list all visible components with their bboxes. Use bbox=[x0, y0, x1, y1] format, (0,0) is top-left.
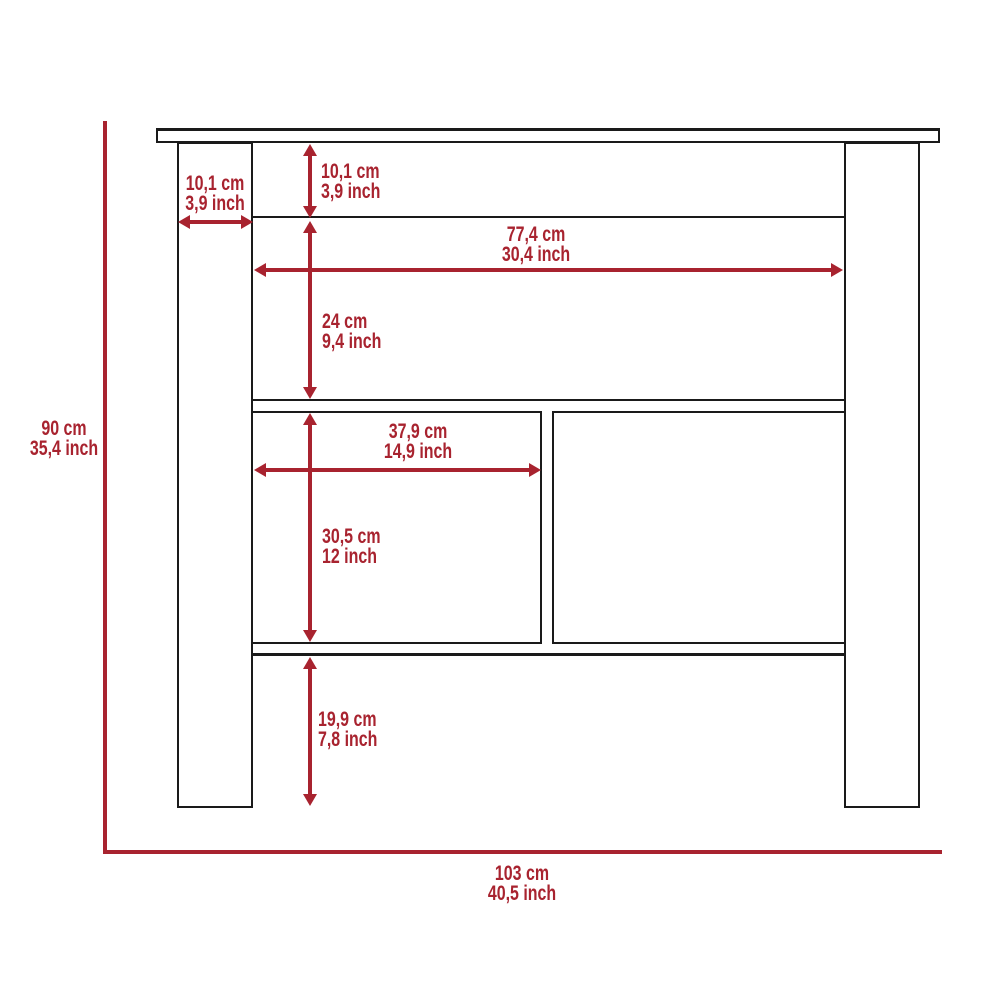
overall-width-inch: 40,5 inch bbox=[461, 884, 583, 904]
overall-width-label: 103 cm 40,5 inch bbox=[461, 864, 583, 904]
overall-width-line bbox=[103, 850, 942, 854]
upper-shelf-height-arrow bbox=[303, 221, 317, 399]
left-compartment-width-cm: 37,9 cm bbox=[357, 422, 479, 442]
upper-shelf-height-inch: 9,4 inch bbox=[322, 332, 381, 352]
upper-shelf-height-label: 24 cm 9,4 inch bbox=[322, 312, 381, 352]
leg-clearance-height-cm: 19,9 cm bbox=[318, 710, 377, 730]
overall-width-cm: 103 cm bbox=[461, 864, 583, 884]
right-leg bbox=[844, 142, 920, 808]
leg-width-label: 10,1 cm 3,9 inch bbox=[154, 174, 276, 214]
inner-width-label: 77,4 cm 30,4 inch bbox=[475, 225, 597, 265]
leg-width-inch: 3,9 inch bbox=[154, 194, 276, 214]
table-top bbox=[156, 128, 940, 143]
leg-width-cm: 10,1 cm bbox=[154, 174, 276, 194]
inner-width-cm: 77,4 cm bbox=[475, 225, 597, 245]
top-section-height-label: 10,1 cm 3,9 inch bbox=[321, 162, 380, 202]
overall-height-line bbox=[103, 121, 107, 854]
upper-shelf-height-cm: 24 cm bbox=[322, 312, 381, 332]
lower-section-height-inch: 12 inch bbox=[322, 547, 381, 567]
lower-section-height-label: 30,5 cm 12 inch bbox=[322, 527, 381, 567]
left-leg bbox=[177, 142, 253, 808]
lower-section-height-arrow bbox=[303, 413, 317, 642]
overall-height-cm: 90 cm bbox=[3, 419, 125, 439]
left-compartment-width-inch: 14,9 inch bbox=[357, 442, 479, 462]
top-section-height-cm: 10,1 cm bbox=[321, 162, 380, 182]
leg-clearance-height-arrow bbox=[303, 657, 317, 806]
top-section-height-inch: 3,9 inch bbox=[321, 182, 380, 202]
leg-clearance-height-label: 19,9 cm 7,8 inch bbox=[318, 710, 377, 750]
dimension-diagram: 90 cm 35,4 inch 10,1 cm 3,9 inch 10,1 cm… bbox=[0, 0, 1000, 1000]
overall-height-inch: 35,4 inch bbox=[3, 439, 125, 459]
top-section-height-arrow bbox=[303, 144, 317, 218]
lower-section-height-cm: 30,5 cm bbox=[322, 527, 381, 547]
leg-width-arrow bbox=[178, 215, 253, 229]
top-rail-line bbox=[253, 216, 844, 218]
leg-clearance-height-inch: 7,8 inch bbox=[318, 730, 377, 750]
left-compartment-width-arrow bbox=[254, 463, 541, 477]
left-compartment-width-label: 37,9 cm 14,9 inch bbox=[357, 422, 479, 462]
inner-width-inch: 30,4 inch bbox=[475, 245, 597, 265]
center-divider bbox=[540, 411, 554, 644]
overall-height-label: 90 cm 35,4 inch bbox=[3, 419, 125, 459]
bottom-shelf bbox=[253, 642, 844, 656]
